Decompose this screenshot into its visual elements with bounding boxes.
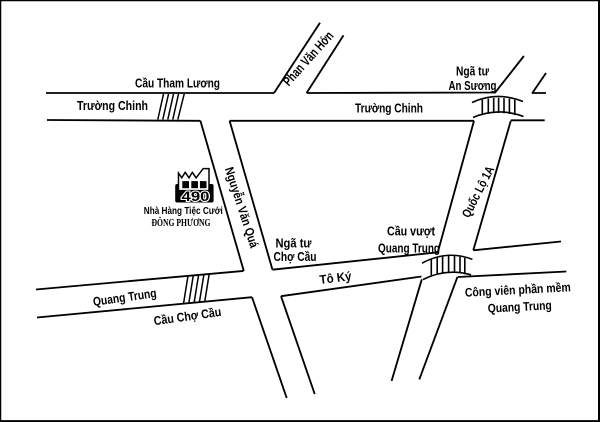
svg-text:Cầu Tham Lương: Cầu Tham Lương	[135, 76, 220, 91]
svg-text:An Sương: An Sương	[449, 79, 497, 93]
svg-text:Nhà Hàng Tiệc Cưới: Nhà Hàng Tiệc Cưới	[144, 205, 223, 217]
svg-text:Ngã tư: Ngã tư	[456, 65, 490, 79]
svg-text:Quang Trung: Quang Trung	[378, 242, 440, 256]
svg-text:Cầu vượt: Cầu vượt	[387, 225, 436, 239]
svg-text:Trường Chinh: Trường Chinh	[355, 101, 423, 116]
svg-text:Chợ Cầu: Chợ Cầu	[274, 250, 317, 264]
svg-text:Ngã tư: Ngã tư	[276, 237, 313, 251]
svg-text:Trường Chinh: Trường Chinh	[77, 98, 148, 113]
svg-text:490: 490	[182, 189, 210, 204]
svg-text:ĐÔNG PHƯƠNG: ĐÔNG PHƯƠNG	[152, 216, 211, 229]
